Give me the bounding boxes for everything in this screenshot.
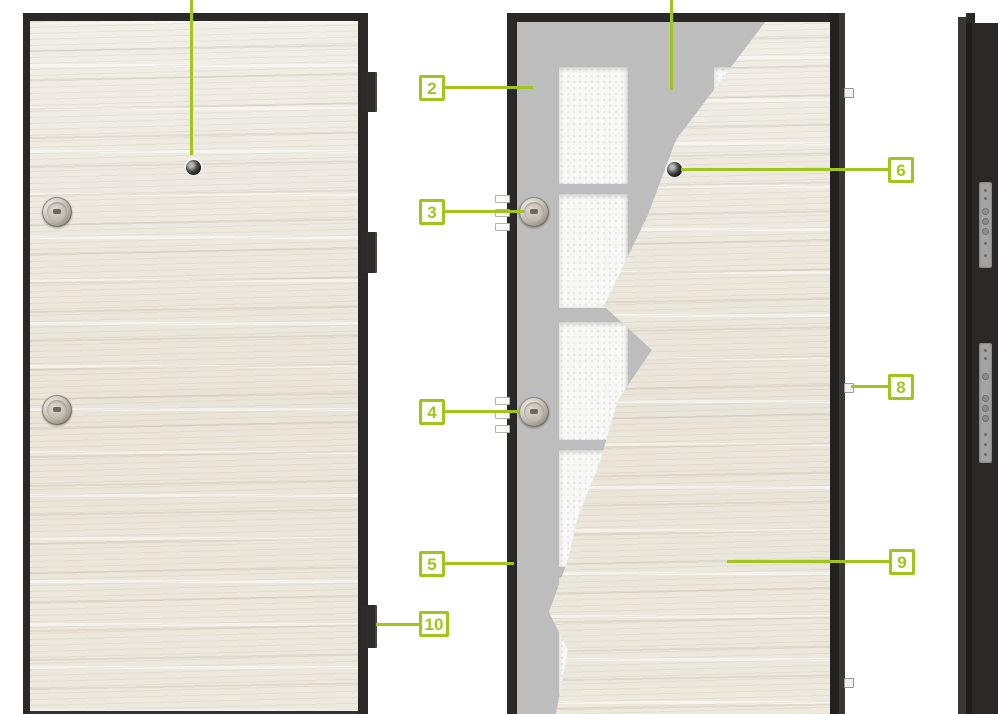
leader-line-3 [445,210,524,213]
hinge-icon [361,72,377,112]
leader-line-6 [681,168,888,171]
cylinder-ring [47,400,67,420]
front-door-wood-panel [30,21,358,714]
leader-line-4 [445,410,519,413]
bolt-hole-icon [982,395,989,402]
bolt-hole-icon [982,405,989,412]
callout-6-label: 6 [896,162,905,179]
leader-line-8 [851,385,888,388]
callout-10: 10 [419,611,449,637]
lock-bolt-icon [495,195,510,203]
screw-icon [984,349,987,352]
cutaway-door-top-frame [507,13,845,22]
hinge-pin-icon [844,88,854,98]
callout-6: 6 [888,157,914,183]
lock-bolt-icon [495,425,510,433]
callout-8-label: 8 [896,379,905,396]
callout-3-label: 3 [427,204,436,221]
keyhole-icon [53,407,61,412]
screw-icon [984,197,987,200]
screw-icon [984,443,987,446]
peephole-icon [186,160,201,175]
callout-10-label: 10 [425,616,444,633]
door-edge-top-step [966,13,975,23]
lock-cylinder-lower-cutaway [519,397,549,427]
screw-icon [984,357,987,360]
leader-line-peephole [190,0,193,155]
door-edge-face-strip [958,17,966,714]
callout-4: 4 [419,399,445,425]
bolt-hole-icon [982,415,989,422]
lock-bolt-icon [495,223,510,231]
callout-5-label: 5 [427,556,436,573]
peephole-icon [667,162,682,177]
hinge-pin-icon [844,678,854,688]
lock-faceplate-upper [979,182,992,268]
lock-cylinder-upper [42,197,72,227]
screw-icon [984,254,987,257]
cylinder-ring [524,202,544,222]
callout-3: 3 [419,199,445,225]
leader-line-10 [376,623,420,626]
lock-cylinder-lower [42,395,72,425]
callout-2-label: 2 [427,80,436,97]
hinge-icon [361,605,377,648]
bolt-hole-icon [982,228,989,235]
callout-9-label: 9 [897,554,906,571]
keyhole-icon [530,409,538,414]
screw-icon [984,189,987,192]
leader-line-2 [445,86,533,89]
cylinder-ring [524,402,544,422]
callout-2: 2 [419,75,445,101]
callout-8: 8 [888,374,914,400]
callout-9: 9 [889,549,915,575]
leader-line-5 [445,562,514,565]
cutaway-door-right-frame [830,13,845,714]
lock-bolt-icon [495,397,510,405]
keyhole-icon [530,209,538,214]
cutaway-door-left-frame [507,13,517,714]
callout-4-label: 4 [427,404,436,421]
callout-5: 5 [419,551,445,577]
leader-line-steel [670,0,673,90]
bolt-hole-icon [982,218,989,225]
keyhole-icon [53,209,61,214]
insulation-block [559,67,628,184]
lock-faceplate-lower [979,343,992,463]
bolt-hole-icon [982,208,989,215]
cylinder-ring [47,202,67,222]
leader-line-9 [727,560,889,563]
screw-icon [984,453,987,456]
screw-icon [984,242,987,245]
bolt-hole-icon [982,373,989,380]
door-construction-diagram: 2 3 4 5 10 6 8 9 [0,0,1000,714]
screw-icon [984,433,987,436]
hinge-icon [361,232,377,273]
